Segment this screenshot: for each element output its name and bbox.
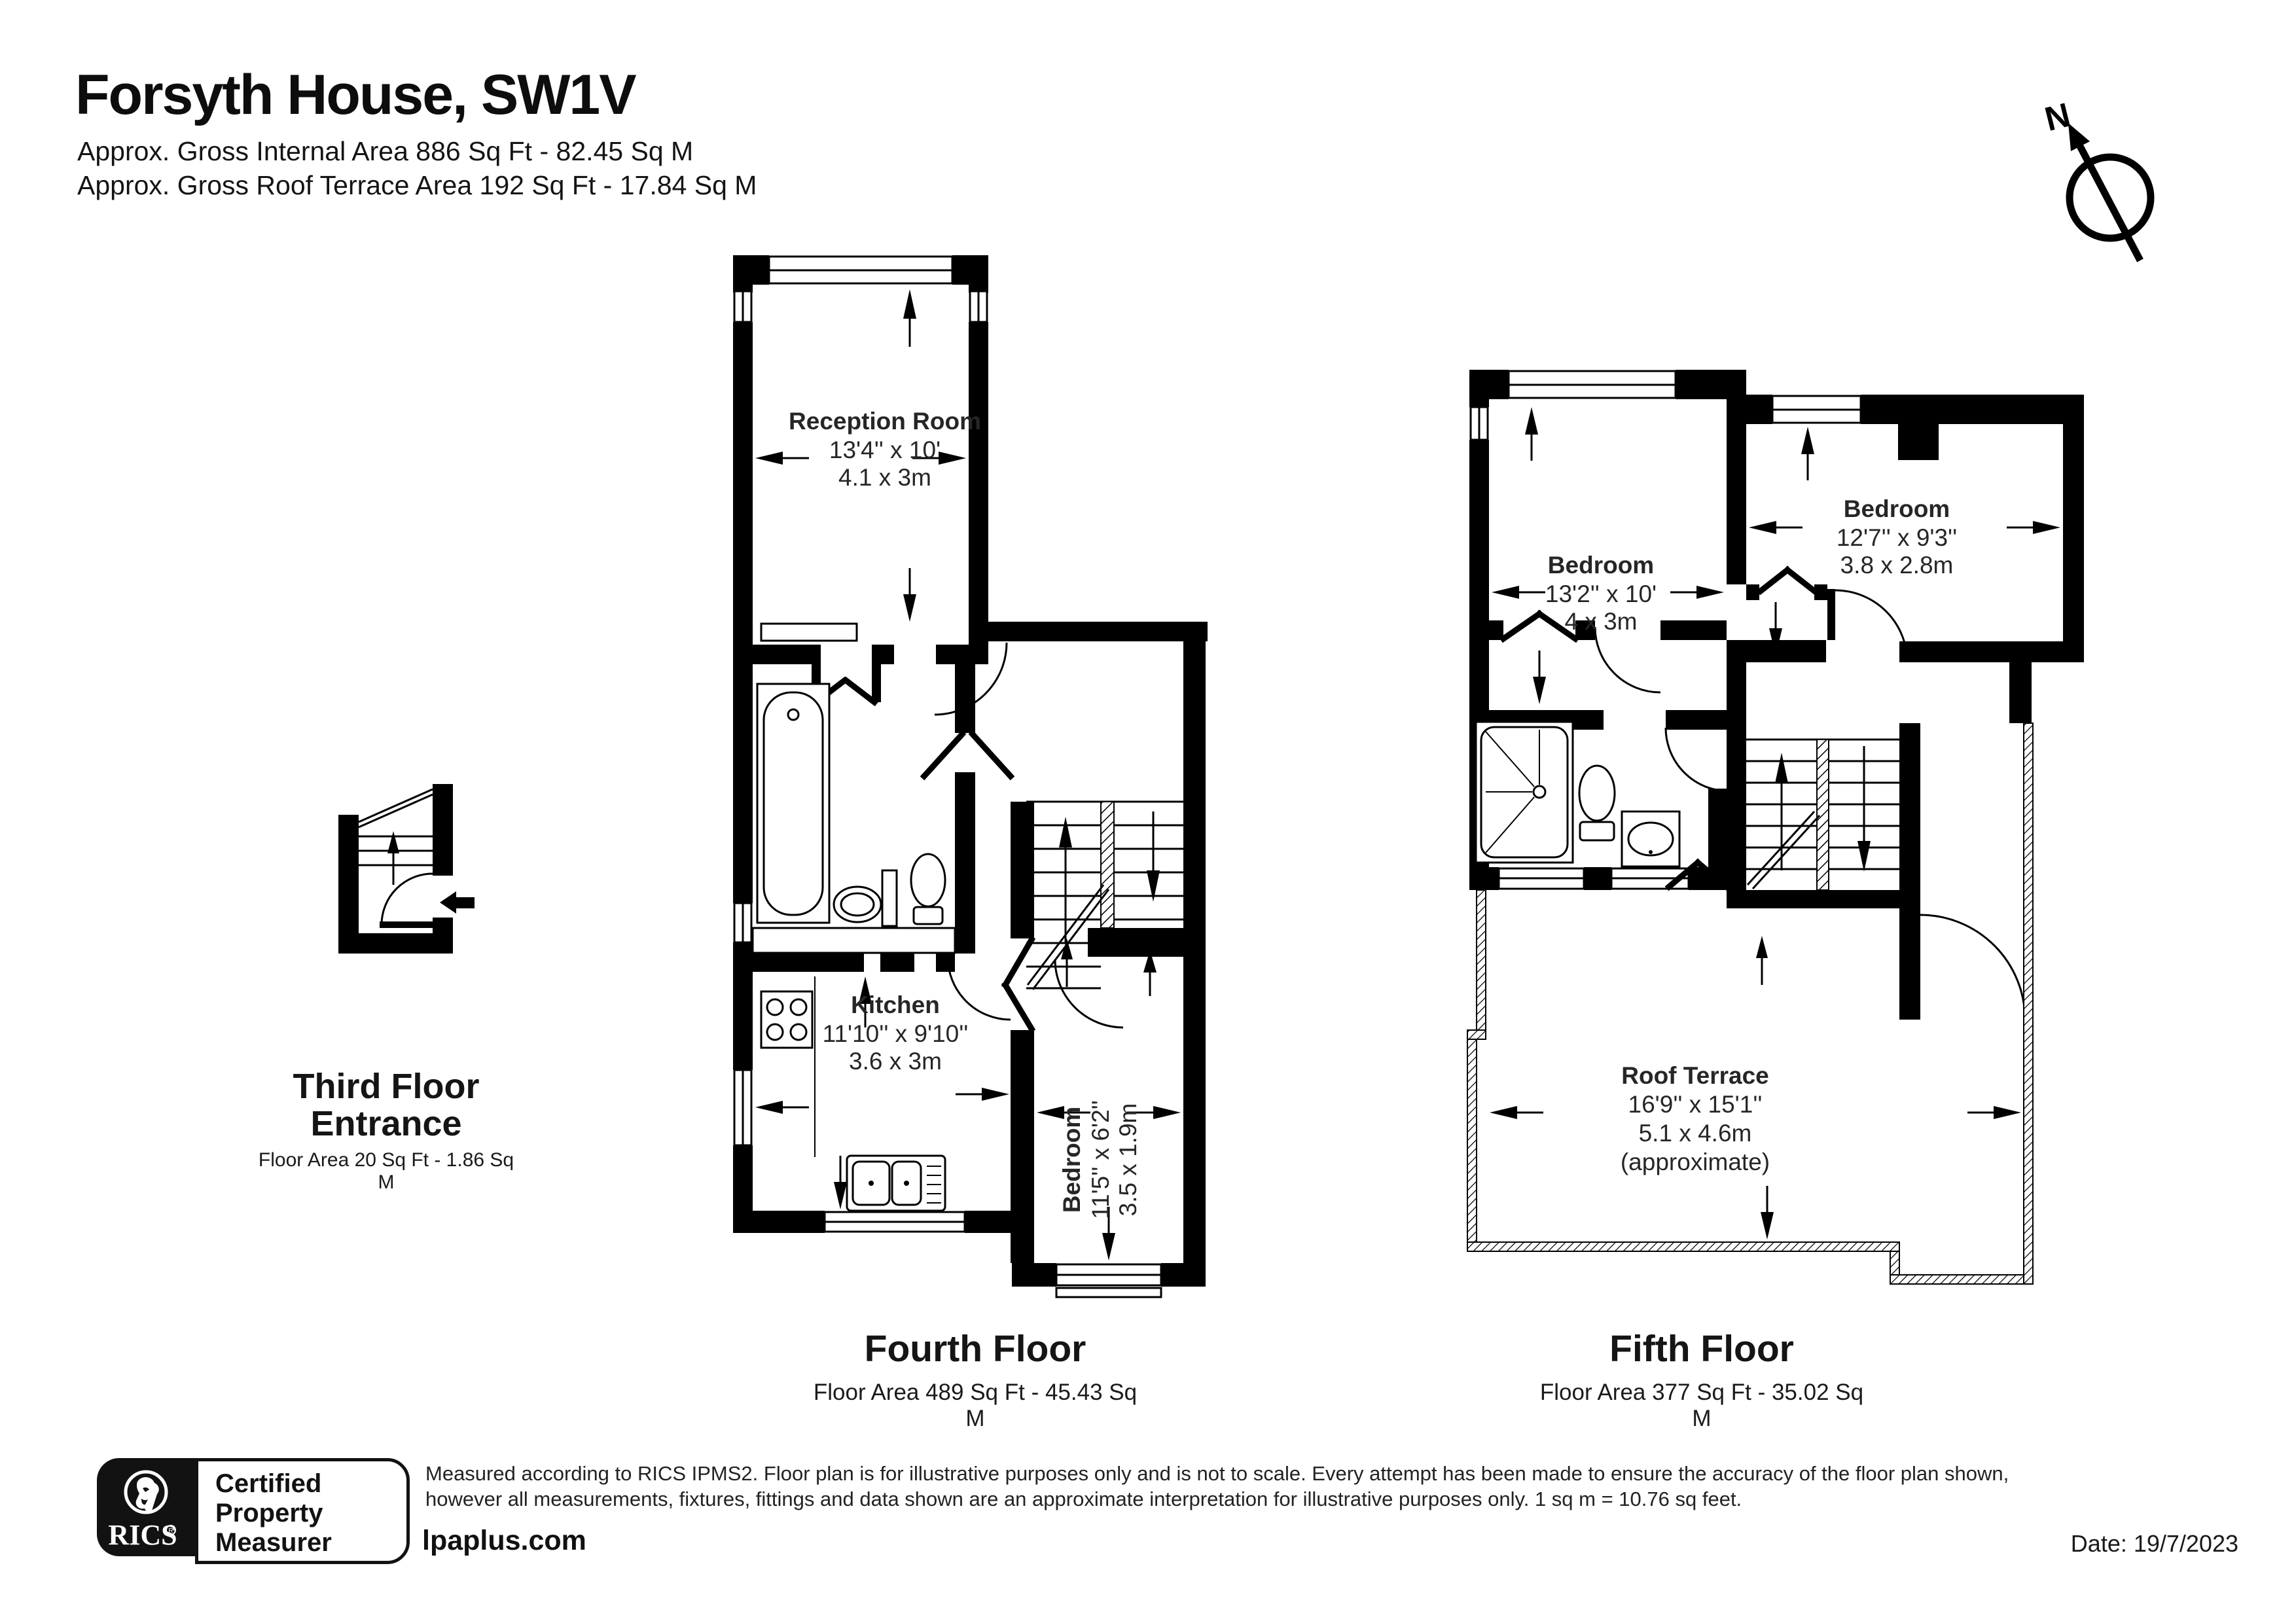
bedroom-right-metric: 3.8 x 2.8m bbox=[1840, 552, 1954, 579]
reception-room-metric: 4.1 x 3m bbox=[838, 464, 931, 491]
disclaimer-line2: however all measurements, fixtures, fitt… bbox=[425, 1486, 1742, 1512]
kitchen-imperial: 11'10'' x 9'10'' bbox=[823, 1020, 969, 1047]
fifth-floor-plan: Bedroom 13'2'' x 10' 4 x 3m Bedroom 12'7… bbox=[1467, 370, 2084, 1284]
shower bbox=[1476, 722, 1573, 863]
kitchen-metric: 3.6 x 3m bbox=[849, 1048, 942, 1075]
bedroom4-name: Bedroom bbox=[1058, 1107, 1085, 1213]
vanity-counter bbox=[753, 928, 955, 953]
certified-property-measurer-badge: Certified Property Measurer bbox=[195, 1458, 410, 1564]
fourth-floor-caption: Fourth Floor Floor Area 489 Sq Ft - 45.4… bbox=[812, 1327, 1139, 1432]
floorplan-canvas: N bbox=[0, 0, 2296, 1623]
staircase bbox=[1746, 740, 1899, 985]
plan-date: Date: 19/7/2023 bbox=[1977, 1530, 2238, 1558]
reception-room-name: Reception Room bbox=[789, 408, 981, 435]
reception-room-imperial: 13'4'' x 10' bbox=[829, 437, 941, 463]
fifth-floor-area: Floor Area 377 Sq Ft - 35.02 Sq M bbox=[1538, 1380, 1865, 1432]
disclaimer-line1: Measured according to RICS IPMS2. Floor … bbox=[425, 1461, 2009, 1486]
bedroom-right-name: Bedroom bbox=[1844, 495, 1950, 522]
fourth-floor-plan: Reception Room 13'4'' x 10' 4.1 x 3m Kit… bbox=[733, 255, 1208, 1297]
bedroom-left-name: Bedroom bbox=[1548, 552, 1654, 579]
compass-north-label: N bbox=[2041, 96, 2074, 139]
bedroom4-imperial: 11'5'' x 6'2'' bbox=[1087, 1100, 1114, 1219]
rics-lion-icon: RICS R bbox=[97, 1458, 195, 1556]
kitchen-name: Kitchen bbox=[851, 991, 940, 1018]
bedroom-left-imperial: 13'2'' x 10' bbox=[1545, 580, 1657, 607]
website-link[interactable]: lpaplus.com bbox=[422, 1525, 586, 1557]
bedroom4-metric: 3.5 x 1.9m bbox=[1115, 1103, 1141, 1217]
badge-line2: Property bbox=[215, 1499, 406, 1528]
third-floor-plan bbox=[338, 784, 475, 954]
staircase bbox=[359, 789, 433, 885]
svg-text:R: R bbox=[168, 1527, 173, 1535]
badge-line1: Certified bbox=[215, 1469, 406, 1499]
fifth-floor-caption: Fifth Floor Floor Area 377 Sq Ft - 35.02… bbox=[1538, 1327, 1865, 1432]
bedroom-left-metric: 4 x 3m bbox=[1564, 608, 1637, 635]
boiler-cupboard bbox=[882, 870, 897, 926]
walls bbox=[338, 784, 453, 954]
fourth-floor-title: Fourth Floor bbox=[812, 1327, 1139, 1370]
north-compass-icon: N bbox=[2041, 96, 2151, 260]
bathroom-sink bbox=[834, 887, 881, 922]
roof-terrace-name: Roof Terrace bbox=[1621, 1062, 1769, 1089]
rics-wordmark: RICS bbox=[108, 1519, 177, 1551]
fifth-floor-title: Fifth Floor bbox=[1538, 1327, 1865, 1370]
fourth-floor-area: Floor Area 489 Sq Ft - 45.43 Sq M bbox=[812, 1380, 1139, 1432]
roof-terrace-note: (approximate) bbox=[1621, 1149, 1770, 1175]
roof-terrace-imperial: 16'9'' x 15'1'' bbox=[1628, 1091, 1763, 1118]
toilet bbox=[911, 854, 945, 924]
third-floor-title-line1: Third Floor bbox=[255, 1068, 517, 1105]
bathtub bbox=[757, 684, 829, 923]
third-floor-title-line2: Entrance bbox=[255, 1105, 517, 1143]
bedroom-right-imperial: 12'7'' x 9'3'' bbox=[1837, 524, 1957, 551]
entrance-door-arc bbox=[380, 874, 433, 928]
walls bbox=[1469, 370, 2084, 1020]
staircase bbox=[1026, 802, 1183, 990]
entrance-arrow-icon bbox=[440, 891, 475, 914]
toilet bbox=[1579, 766, 1615, 840]
hob bbox=[761, 991, 812, 1048]
third-floor-caption: Third Floor Entrance Floor Area 20 Sq Ft… bbox=[255, 1068, 517, 1194]
badge-line3: Measurer bbox=[215, 1528, 406, 1558]
third-floor-area: Floor Area 20 Sq Ft - 1.86 Sq M bbox=[255, 1149, 517, 1194]
roof-terrace-metric: 5.1 x 4.6m bbox=[1639, 1120, 1752, 1147]
shower-room-sink bbox=[1622, 811, 1679, 866]
kitchen-sink bbox=[847, 1156, 945, 1211]
rics-logo: RICS R bbox=[97, 1458, 195, 1556]
dimension-arrows bbox=[1490, 407, 2060, 1240]
